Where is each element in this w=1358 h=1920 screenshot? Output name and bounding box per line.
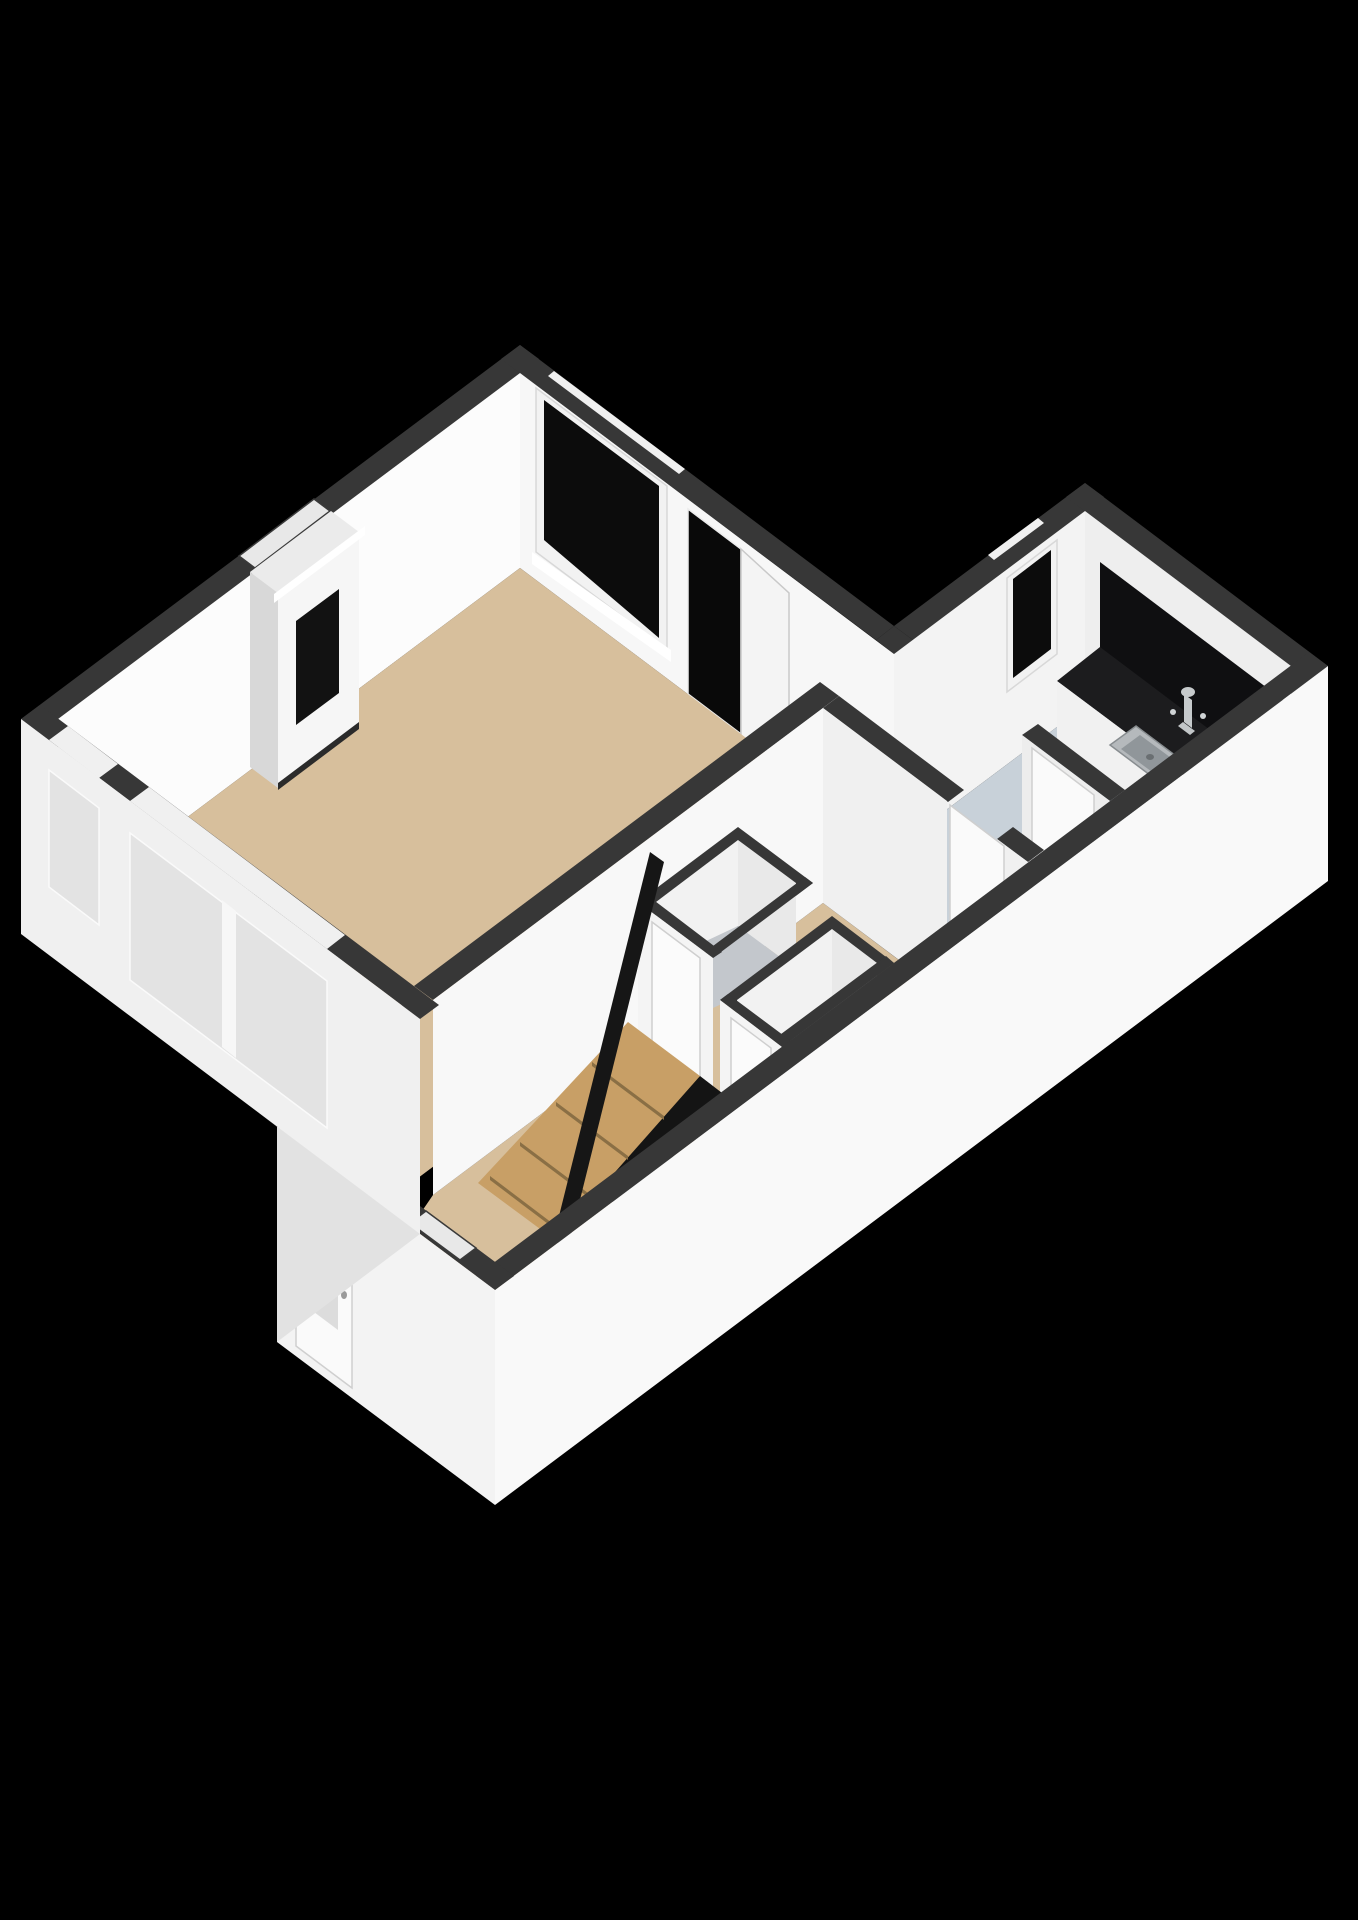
fireplace-side <box>250 572 278 788</box>
faucet-handle-right <box>1200 713 1206 719</box>
large-window-left-mullion <box>222 900 236 1058</box>
floorplan-svg <box>0 0 1358 1920</box>
faucet-spout <box>1181 687 1195 697</box>
faucet-handle-left <box>1170 709 1176 715</box>
sink-drain <box>1146 754 1154 760</box>
floorplan-3d-render <box>0 0 1358 1920</box>
